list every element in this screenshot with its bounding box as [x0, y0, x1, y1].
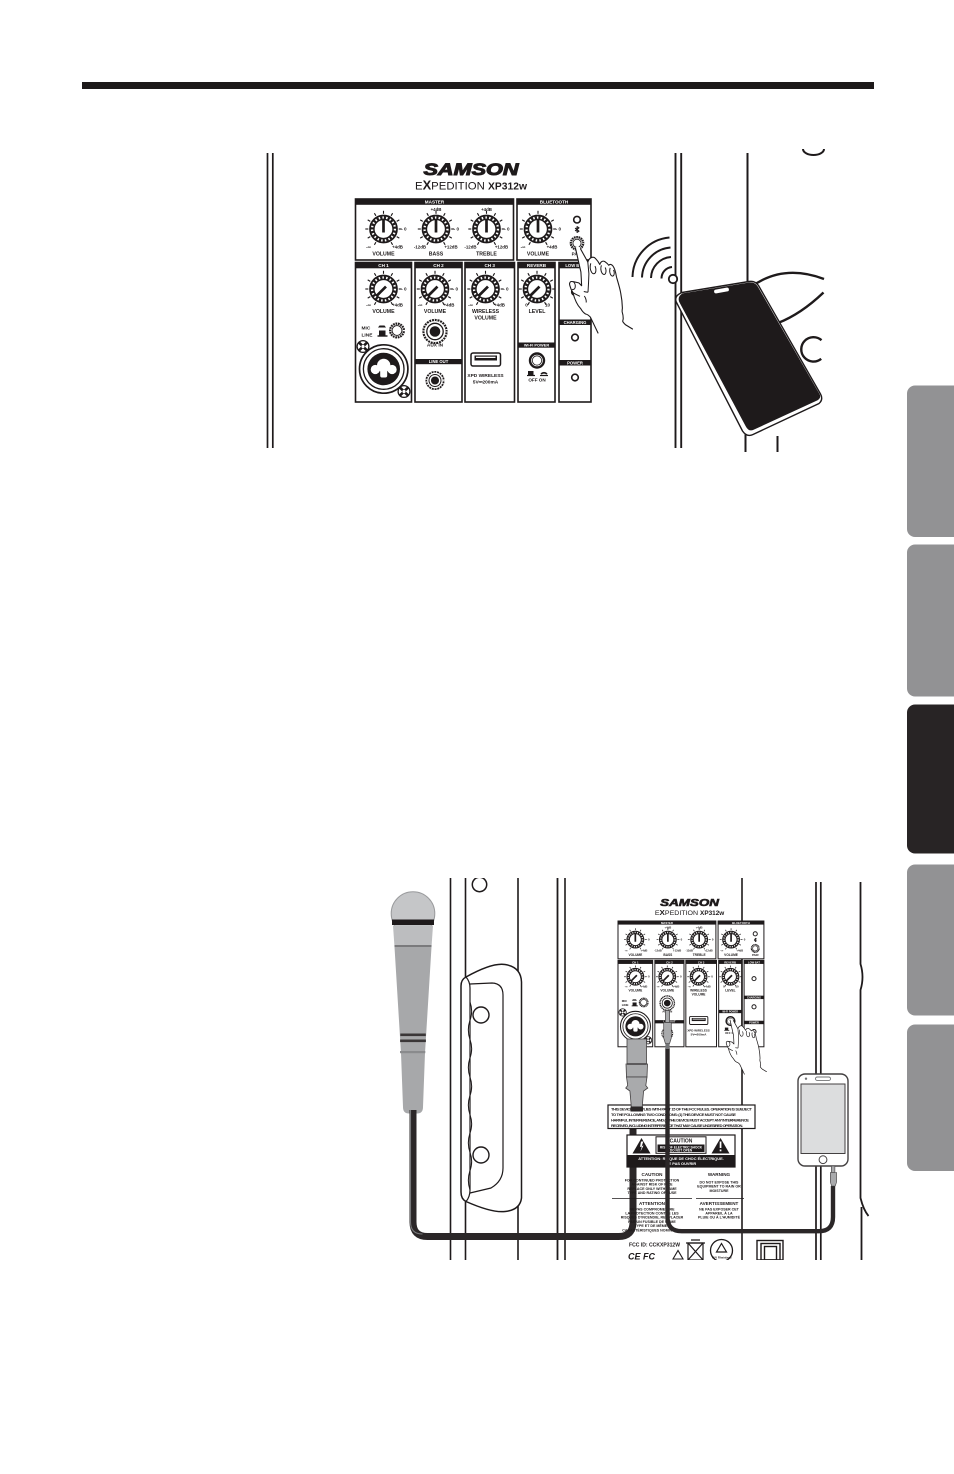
svg-text:DO NOT OPEN: DO NOT OPEN: [670, 1149, 693, 1153]
svg-text:MOISTURE: MOISTURE: [710, 1189, 730, 1193]
svg-text:CAUTION: CAUTION: [642, 1172, 664, 1177]
svg-text:RECEIVED, INCLUDING INTERFEREN: RECEIVED, INCLUDING INTERFERENCE THAT MA…: [611, 1123, 743, 1128]
svg-text:CE FC: CE FC: [628, 1252, 656, 1262]
svg-text:CAUTION: CAUTION: [670, 1139, 693, 1145]
svg-text:FCC ID: CCKXP312W: FCC ID: CCKXP312W: [629, 1243, 680, 1249]
svg-text:ATTENTION: ATTENTION: [639, 1201, 666, 1206]
svg-text:WARNING: WARNING: [708, 1172, 731, 1177]
svg-text:AVERTISSEMENT: AVERTISSEMENT: [700, 1201, 739, 1206]
svg-text:HARMFUL INTERFERENCE, AND (2): HARMFUL INTERFERENCE, AND (2) THE DEVICE…: [611, 1118, 749, 1123]
svg-text:PLUIE OU À L'HUMIDITÉ: PLUIE OU À L'HUMIDITÉ: [698, 1215, 741, 1220]
svg-text:TUV Rheinland: TUV Rheinland: [712, 1256, 732, 1260]
svg-text:TO THE FOLLOWING TWO CONDITION: TO THE FOLLOWING TWO CONDITIONS: (1) THI…: [611, 1112, 736, 1117]
svg-text:NE PAS OUVRIR: NE PAS OUVRIR: [666, 1161, 697, 1166]
